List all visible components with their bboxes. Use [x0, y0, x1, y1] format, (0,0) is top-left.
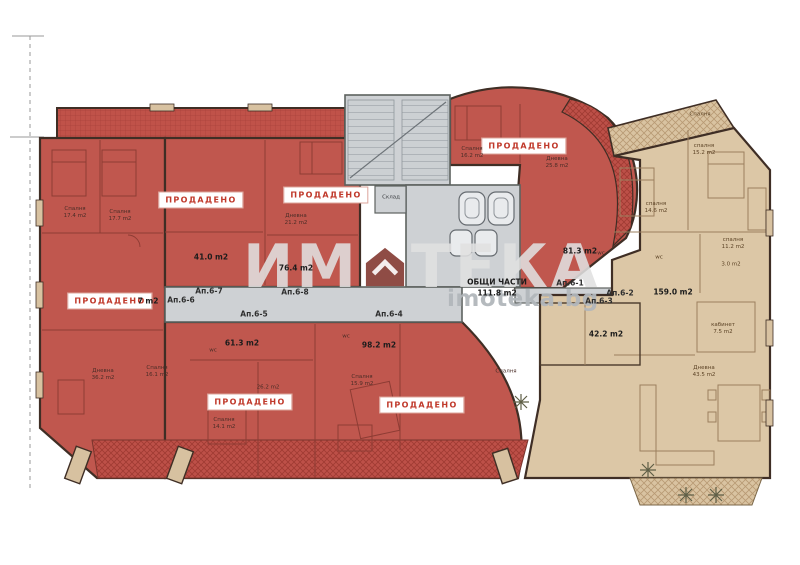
- unit-label-a65: Ап.6-5: [240, 310, 267, 319]
- sold-badge: ПРОДАДЕНО: [379, 397, 464, 414]
- room-label-wc: wc: [342, 333, 350, 340]
- room-label: Дневна25.8 m2: [546, 156, 569, 170]
- unit-label-a67: Ап.6-7: [195, 287, 222, 296]
- unit-label-a66: Ап.6-6: [167, 296, 194, 305]
- room-label: Спалня: [689, 111, 710, 118]
- room-label: спалня14.6 m2: [645, 201, 668, 215]
- unit-area-a68: 76.4 m2: [279, 264, 313, 273]
- unit-label-a63: Ап.6-3: [585, 297, 612, 306]
- unit-area-a63: 42.2 m2: [589, 330, 623, 339]
- house-icon: [364, 244, 406, 290]
- room-label: Дневна21.2 m2: [285, 213, 308, 227]
- room-label: Спалня17.7 m2: [109, 209, 132, 223]
- room-label: Спалня15.9 m2: [351, 374, 374, 388]
- common-area-title: ОБЩИ ЧАСТИ: [467, 278, 527, 289]
- room-label-wc: wc: [597, 250, 605, 257]
- sold-badge: ПРОДАДЕНО: [481, 138, 566, 155]
- room-label: Спалня: [495, 368, 516, 375]
- unit-label-a64: Ап.6-4: [375, 310, 402, 319]
- common-area-label: ОБЩИ ЧАСТИ 111.8 m2: [467, 278, 527, 299]
- unit-area-a61: 81.3 m2: [563, 247, 597, 256]
- unit-label-a61: Ап.6-1: [556, 279, 583, 288]
- room-label-wc: wc: [209, 347, 217, 354]
- common-area-size: 111.8 m2: [467, 288, 527, 299]
- room-label: спалня11.2 m2: [722, 237, 745, 251]
- floor-plan: ИМ ТЕКА imoteka.bg ПРОДАДЕНО ПРОДАДЕНО П…: [0, 0, 800, 565]
- room-label: Дневна43.5 m2: [693, 365, 716, 379]
- sold-badge: ПРОДАДЕНО: [283, 187, 368, 204]
- unit-area-a62: 159.0 m2: [653, 288, 692, 297]
- room-label: Дневна36.2 m2: [92, 368, 115, 382]
- room-label: Спалня17.4 m2: [64, 206, 87, 220]
- room-label: спалня15.2 m2: [693, 143, 716, 157]
- unit-area-a66: 7 m2: [138, 297, 159, 306]
- sold-badge: ПРОДАДЕНО: [158, 192, 243, 209]
- room-label: 3.0 m2: [721, 261, 740, 268]
- room-label: Спалня16.1 m2: [146, 365, 169, 379]
- room-label-wc: wc: [655, 254, 663, 261]
- unit-area-a67: 41.0 m2: [194, 253, 228, 262]
- room-label: Спалня16.2 m2: [461, 146, 484, 160]
- unit-label-a68: Ап.6-8: [281, 288, 308, 297]
- room-label: Спалня14.1 m2: [213, 417, 236, 431]
- unit-area-a64: 98.2 m2: [362, 341, 396, 350]
- sold-badge: ПРОДАДЕНО: [207, 394, 292, 411]
- unit-area-a65: 61.3 m2: [225, 339, 259, 348]
- room-label: 26.2 m2: [257, 384, 280, 391]
- room-label-storage: Склад: [382, 194, 400, 201]
- room-label: кабинет7.5 m2: [711, 322, 735, 336]
